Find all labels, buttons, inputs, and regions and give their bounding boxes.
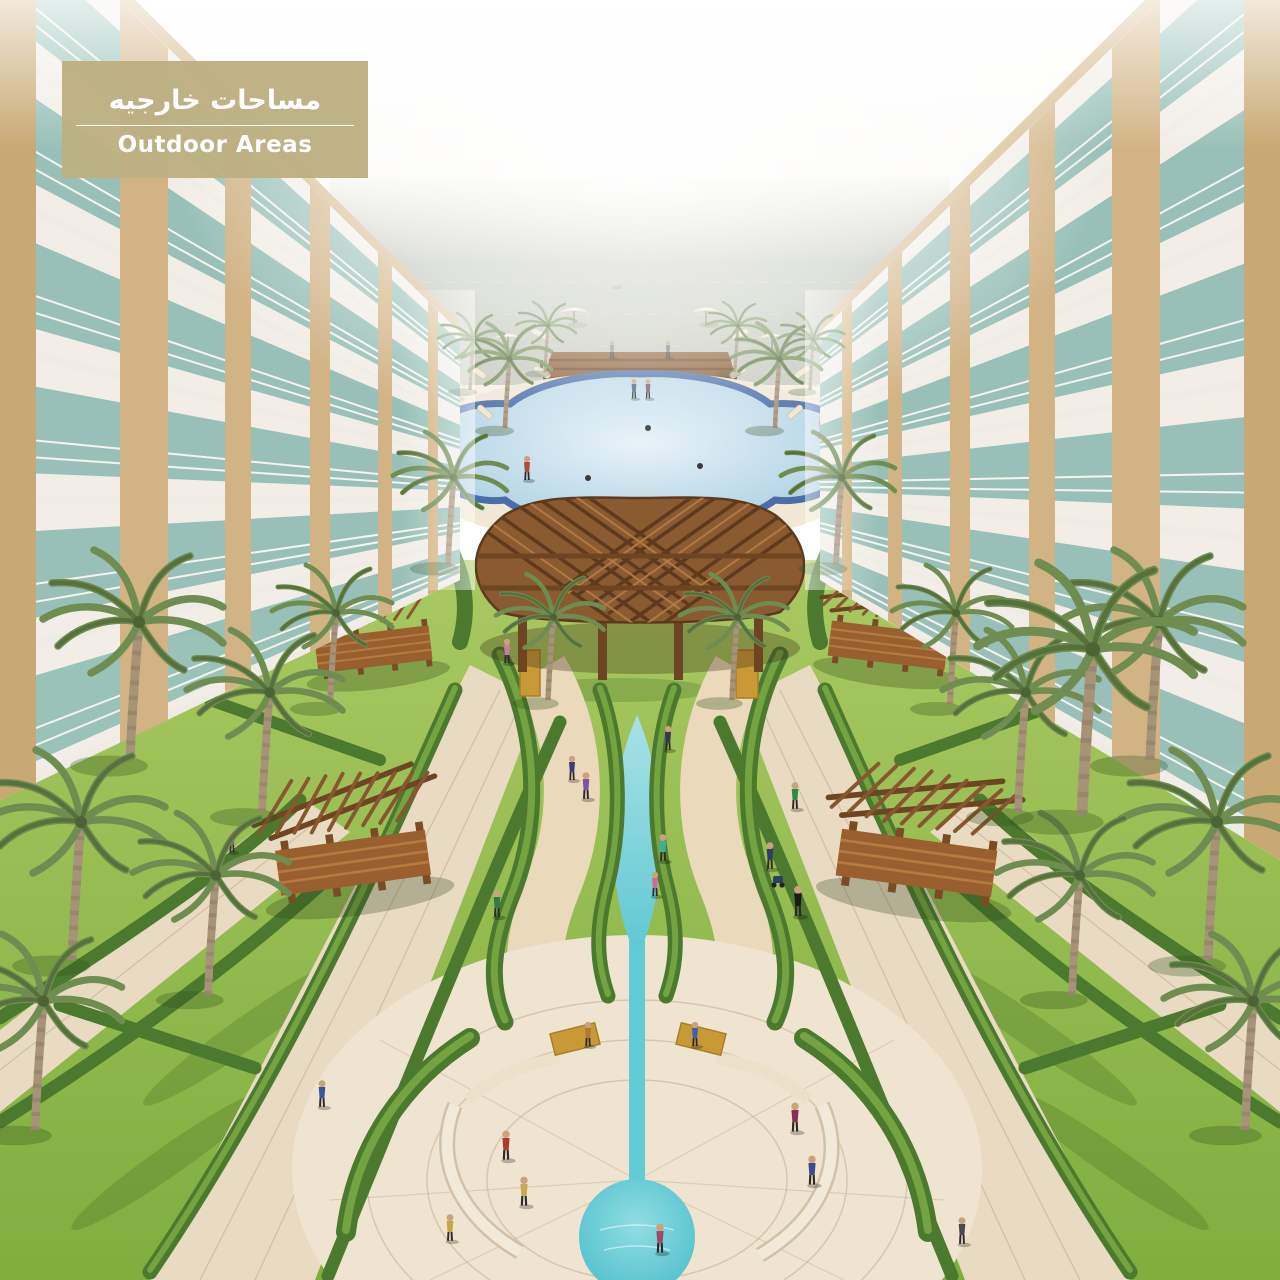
title-english: Outdoor Areas <box>118 132 313 158</box>
outdoor-areas-render: مساحات خارجيه Outdoor Areas <box>0 0 1280 1280</box>
compound-scene <box>0 0 1280 1280</box>
title-arabic: مساحات خارجيه <box>109 81 321 122</box>
title-divider <box>76 125 354 126</box>
water-channel <box>629 940 645 1190</box>
title-badge: مساحات خارجيه Outdoor Areas <box>62 61 368 178</box>
